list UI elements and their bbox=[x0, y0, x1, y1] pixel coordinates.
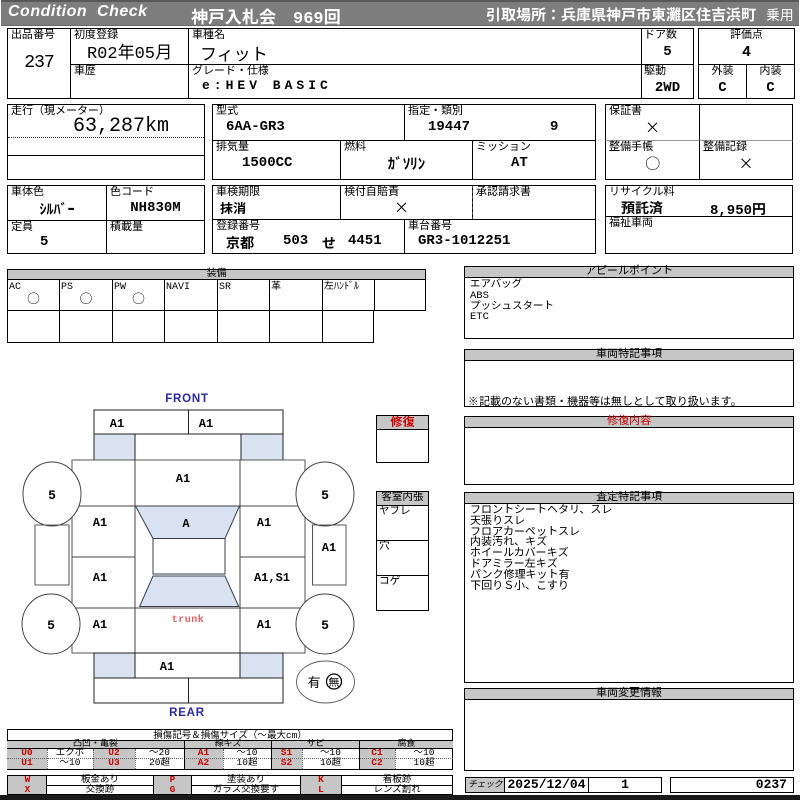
svg-text:A: A bbox=[182, 517, 190, 531]
svg-text:A1: A1 bbox=[257, 618, 271, 632]
svg-text:5: 5 bbox=[321, 488, 329, 503]
svg-text:A1: A1 bbox=[199, 417, 213, 431]
svg-text:A1: A1 bbox=[93, 571, 107, 585]
svg-text:FRONT: FRONT bbox=[165, 393, 209, 405]
svg-text:有: 有 bbox=[307, 675, 320, 690]
svg-text:trunk: trunk bbox=[172, 614, 205, 626]
svg-text:REAR: REAR bbox=[169, 707, 205, 719]
svg-text:A1: A1 bbox=[176, 472, 190, 486]
svg-text:A1: A1 bbox=[93, 516, 107, 530]
svg-text:A1: A1 bbox=[160, 660, 174, 674]
svg-text:無: 無 bbox=[329, 676, 340, 689]
svg-text:A1: A1 bbox=[110, 417, 124, 431]
svg-text:A1: A1 bbox=[322, 541, 336, 555]
svg-text:A1,S1: A1,S1 bbox=[254, 571, 290, 585]
svg-text:5: 5 bbox=[48, 488, 56, 503]
svg-text:A1: A1 bbox=[93, 618, 107, 632]
svg-text:5: 5 bbox=[47, 618, 55, 633]
svg-text:5: 5 bbox=[321, 618, 329, 633]
svg-text:A1: A1 bbox=[257, 516, 271, 530]
